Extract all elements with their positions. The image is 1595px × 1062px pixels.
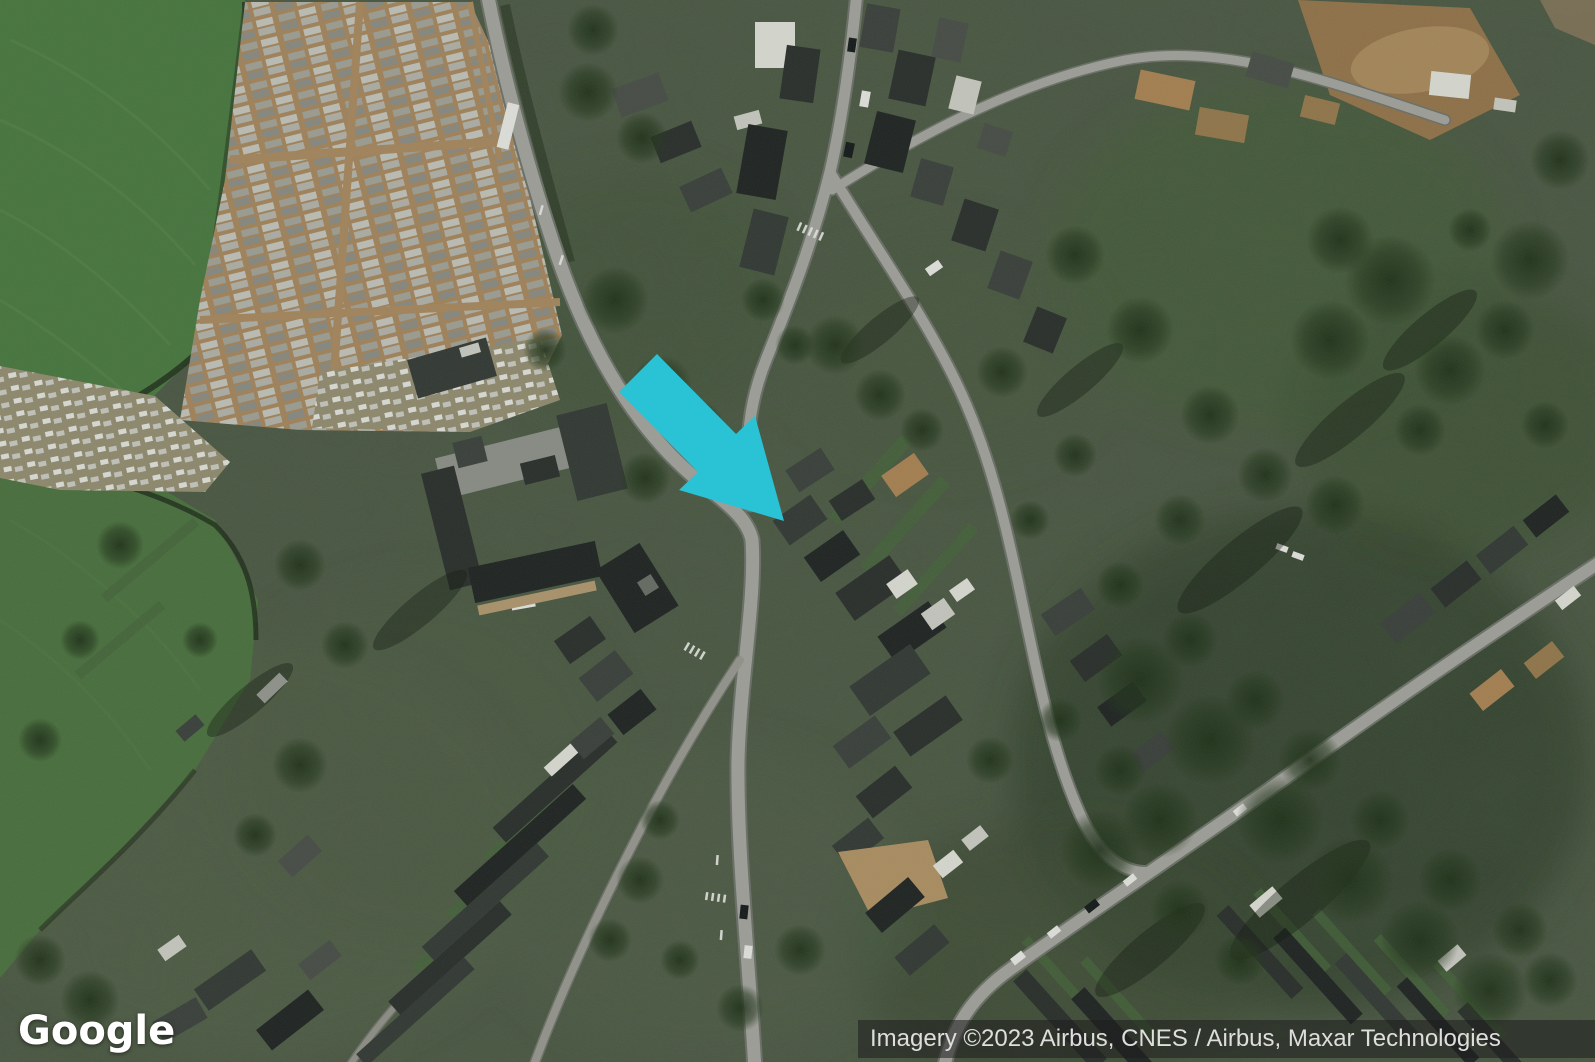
satellite-map-canvas[interactable]: Google Imagery ©2023 Airbus, CNES / Airb… [0, 0, 1595, 1062]
attribution-text: Imagery ©2023 Airbus, CNES / Airbus, Max… [858, 1025, 1501, 1053]
satellite-imagery [0, 0, 1595, 1062]
google-logo[interactable]: Google [18, 1008, 175, 1054]
tone-overlay [0, 0, 1595, 1062]
map-attribution: Imagery ©2023 Airbus, CNES / Airbus, Max… [858, 1020, 1595, 1058]
